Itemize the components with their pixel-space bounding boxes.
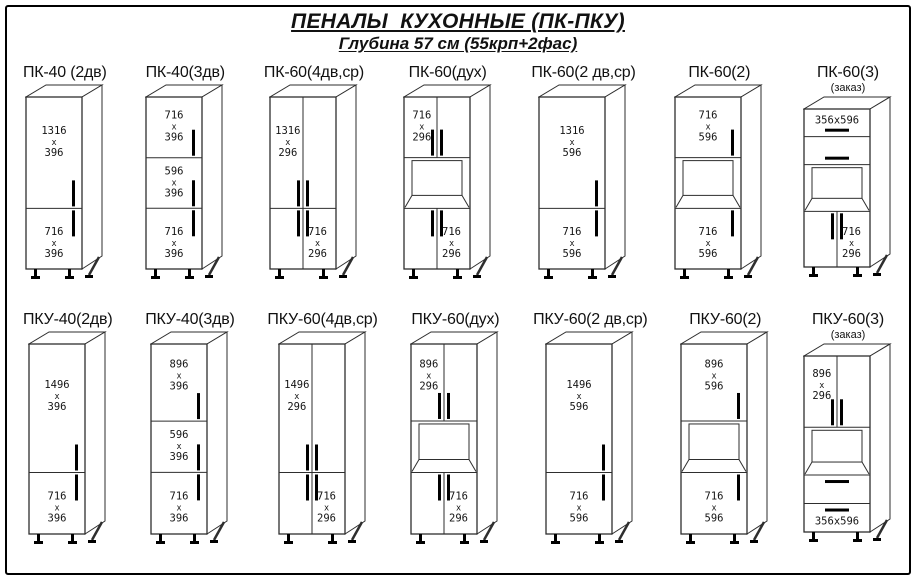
cabinet-drawing: 896х296356х596 [803, 343, 893, 548]
cabinet-pku-60-3: ПКУ-60(3)(заказ)896х296356х596 [803, 305, 893, 548]
cabinet-drawing: 716х596716х596 [674, 84, 764, 285]
cabinet-drawing: 716х296716х296 [403, 84, 493, 285]
cabinet-foot [595, 541, 604, 544]
door-handle [731, 129, 734, 155]
cabinet-pk-60-4dv-sr: ПК-60(4дв,ср)1316х296716х296 [264, 58, 364, 285]
cabinet-label: ПК-40 (2дв) [23, 58, 107, 84]
cabinet-foot [331, 534, 334, 541]
cabinet-drawing: 1316х596716х596 [538, 84, 628, 285]
cabinet-foot [88, 540, 96, 543]
cabinet-foot [34, 269, 37, 276]
cabinet-foot [463, 534, 466, 541]
cabinet-foot [856, 267, 859, 274]
cabinet-label: ПКУ-40(3дв) [145, 305, 234, 331]
cabinet-foot [154, 269, 157, 276]
cabinet-pku-60-duh: ПКУ-60(дух)896х296716х296 [410, 305, 500, 550]
cabinet-pku-40-3dv: ПКУ-40(3дв)896х396596х396716х396 [145, 305, 234, 550]
door-handle [602, 444, 605, 470]
cabinet-foot [683, 269, 686, 276]
cabinet-side-face [202, 85, 222, 269]
cabinet-foot [588, 276, 597, 279]
cabinet-foot [544, 276, 553, 279]
cabinet-foot [275, 276, 284, 279]
cabinet-label: ПКУ-40(2дв) [23, 305, 112, 331]
cabinet-label: ПК-60(4дв,ср) [264, 58, 364, 84]
cabinet-foot [733, 534, 736, 541]
door-handle [731, 210, 734, 236]
cabinet-foot [680, 276, 689, 279]
cabinet-side-face [870, 97, 890, 267]
cabinet-foot [686, 541, 695, 544]
cabinet-foot [205, 275, 213, 278]
door-handle [192, 180, 195, 206]
cabinet-foot [856, 532, 859, 539]
door-handle [192, 129, 195, 155]
cabinet-pk-40-2dv: ПК-40 (2дв)1316х396716х396 [23, 58, 107, 285]
door-handle [831, 399, 834, 425]
door-handle [831, 213, 834, 239]
door-handle [306, 180, 309, 206]
door-handle [75, 474, 78, 500]
cabinet-foot [598, 534, 601, 541]
cabinet-foot [31, 276, 40, 279]
cabinet-pk-60-2dv-sr: ПК-60(2 дв,ср)1316х596716х596 [531, 58, 635, 285]
cabinet-foot [853, 539, 862, 542]
dimension-label: 356х596 [815, 515, 859, 527]
cabinet-foot [339, 275, 347, 278]
cabinet-foot [71, 534, 74, 541]
cabinet-side-face [85, 332, 105, 534]
cabinet-foot [730, 541, 739, 544]
cabinet-label: ПКУ-60(2 дв,ср) [533, 305, 647, 331]
cabinet-foot [65, 276, 74, 279]
cabinet-label: ПКУ-60(4дв,ср) [267, 305, 377, 331]
cabinet-foot [615, 540, 623, 543]
cabinet-side-face [470, 85, 490, 269]
door-handle [197, 393, 200, 419]
cabinet-drawing: 356х596716х296 [803, 96, 893, 283]
cabinet-drawing: 1316х396716х396 [25, 84, 105, 285]
cabinet-foot [37, 534, 40, 541]
door-handle [595, 210, 598, 236]
cabinet-drawing: 896х296716х296 [410, 331, 500, 550]
cabinet-foot [188, 269, 191, 276]
page-border: ПЕНАЛЫ КУХОННЫЕ (ПК-ПКУ) Глубина 57 см (… [5, 5, 911, 575]
cabinet-sublabel: (заказ) [831, 82, 866, 96]
cabinet-pku-60-2dv-sr: ПКУ-60(2 дв,ср)1496х596716х596 [533, 305, 647, 550]
cabinet-foot [328, 541, 337, 544]
door-handle [431, 210, 434, 236]
cabinet-side-face [336, 85, 356, 269]
door-handle [438, 393, 441, 419]
door-handle [315, 444, 318, 470]
cabinet-side-face [612, 332, 632, 534]
cabinet-side-face [605, 85, 625, 269]
cabinet-side-face [82, 85, 102, 269]
door-handle [840, 399, 843, 425]
cabinet-foot [809, 539, 818, 542]
door-handle [440, 129, 443, 155]
row-pk-cabinets: ПК-40 (2дв)1316х396716х396ПК-40(3дв)716х… [15, 58, 901, 285]
cabinet-side-face [741, 85, 761, 269]
cabinet-foot [416, 541, 425, 544]
cabinet-foot [554, 534, 557, 541]
cabinet-foot [68, 541, 77, 544]
dimension-label: 356х596 [815, 114, 859, 126]
cabinet-foot [409, 276, 418, 279]
cabinet-foot [456, 269, 459, 276]
door-handle [72, 180, 75, 206]
door-handle [297, 180, 300, 206]
cabinet-foot [419, 534, 422, 541]
cabinet-foot [873, 273, 881, 276]
cabinet-foot [727, 269, 730, 276]
cabinet-label: ПК-60(2) [688, 58, 750, 84]
door-handle [595, 180, 598, 206]
cabinet-foot [278, 269, 281, 276]
cabinet-pk-40-3dv: ПК-40(3дв)716х396596х396716х396 [145, 58, 225, 285]
cabinet-foot [551, 541, 560, 544]
cabinet-foot [348, 540, 356, 543]
door-handle [75, 444, 78, 470]
cabinet-drawing: 1496х296716х296 [278, 331, 368, 550]
cabinet-foot [34, 541, 43, 544]
cabinet-foot [608, 275, 616, 278]
door-handle [431, 129, 434, 155]
door-handle [825, 508, 849, 511]
cabinet-foot [547, 269, 550, 276]
door-handle [197, 474, 200, 500]
cabinet-foot [159, 534, 162, 541]
cabinet-pk-60-2: ПК-60(2)716х596716х596 [674, 58, 764, 285]
door-handle [447, 393, 450, 419]
cabinet-label: ПКУ-60(дух) [411, 305, 499, 331]
cabinet-side-face [477, 332, 497, 534]
cabinet-side-face [207, 332, 227, 534]
cabinet-pku-40-2dv: ПКУ-40(2дв)1496х396716х396 [23, 305, 112, 550]
door-handle [825, 128, 849, 131]
door-handle [72, 210, 75, 236]
cabinet-foot [853, 274, 862, 277]
cabinet-side-face [870, 344, 890, 532]
cabinet-foot [750, 540, 758, 543]
cabinet-foot [210, 540, 218, 543]
page-title: ПЕНАЛЫ КУХОННЫЕ (ПК-ПКУ) [15, 10, 901, 34]
cabinet-foot [319, 276, 328, 279]
cabinet-side-face [345, 332, 365, 534]
cabinet-foot [284, 541, 293, 544]
door-handle [297, 210, 300, 236]
cabinet-foot [151, 276, 160, 279]
door-handle [737, 474, 740, 500]
cabinet-pku-60-2: ПКУ-60(2)896х596716х596 [680, 305, 770, 550]
page-subtitle: Глубина 57 см (55крп+2фас) [15, 34, 901, 53]
cabinet-foot [812, 532, 815, 539]
cabinet-side-face [747, 332, 767, 534]
cabinet-foot [591, 269, 594, 276]
cabinet-label: ПКУ-60(3) [812, 305, 884, 331]
cabinet-foot [809, 274, 818, 277]
cabinet-sublabel: (заказ) [831, 329, 866, 343]
cabinet-foot [873, 538, 881, 541]
cabinet-drawing: 1316х296716х296 [269, 84, 359, 285]
cabinet-pk-60-duh: ПК-60(дух)716х296716х296 [403, 58, 493, 285]
door-handle [825, 480, 849, 483]
cabinet-drawing: 896х396596х396716х396 [150, 331, 230, 550]
cabinet-label: ПК-60(3) [817, 58, 879, 84]
cabinet-pk-60-3: ПК-60(3)(заказ)356х596716х296 [803, 58, 893, 283]
cabinet-foot [190, 541, 199, 544]
door-handle [438, 474, 441, 500]
cabinet-foot [460, 541, 469, 544]
cabinet-foot [412, 269, 415, 276]
cabinet-foot [724, 276, 733, 279]
cabinet-foot [193, 534, 196, 541]
door-handle [306, 444, 309, 470]
door-handle [825, 156, 849, 159]
cabinet-foot [689, 534, 692, 541]
cabinet-foot [287, 534, 290, 541]
door-handle [192, 210, 195, 236]
cabinet-drawing: 716х396596х396716х396 [145, 84, 225, 285]
header: ПЕНАЛЫ КУХОННЫЕ (ПК-ПКУ) Глубина 57 см (… [15, 10, 901, 53]
cabinet-drawing: 1496х596716х596 [545, 331, 635, 550]
door-handle [197, 444, 200, 470]
cabinet-foot [453, 276, 462, 279]
cabinet-foot [68, 269, 71, 276]
cabinet-foot [473, 275, 481, 278]
cabinet-drawing: 896х596716х596 [680, 331, 770, 550]
cabinet-label: ПК-40(3дв) [146, 58, 225, 84]
row-pku-cabinets: ПКУ-40(2дв)1496х396716х396ПКУ-40(3дв)896… [15, 305, 901, 550]
door-handle [602, 474, 605, 500]
cabinet-label: ПК-60(дух) [409, 58, 487, 84]
cabinet-foot [185, 276, 194, 279]
cabinet-pku-60-4dv-sr: ПКУ-60(4дв,ср)1496х296716х296 [267, 305, 377, 550]
cabinet-foot [156, 541, 165, 544]
cabinet-foot [812, 267, 815, 274]
cabinet-label: ПК-60(2 дв,ср) [531, 58, 635, 84]
door-handle [306, 474, 309, 500]
cabinet-foot [480, 540, 488, 543]
door-handle [737, 393, 740, 419]
cabinet-drawing: 1496х396716х396 [28, 331, 108, 550]
cabinet-foot [85, 275, 93, 278]
cabinet-label: ПКУ-60(2) [689, 305, 761, 331]
cabinet-foot [322, 269, 325, 276]
cabinet-foot [744, 275, 752, 278]
